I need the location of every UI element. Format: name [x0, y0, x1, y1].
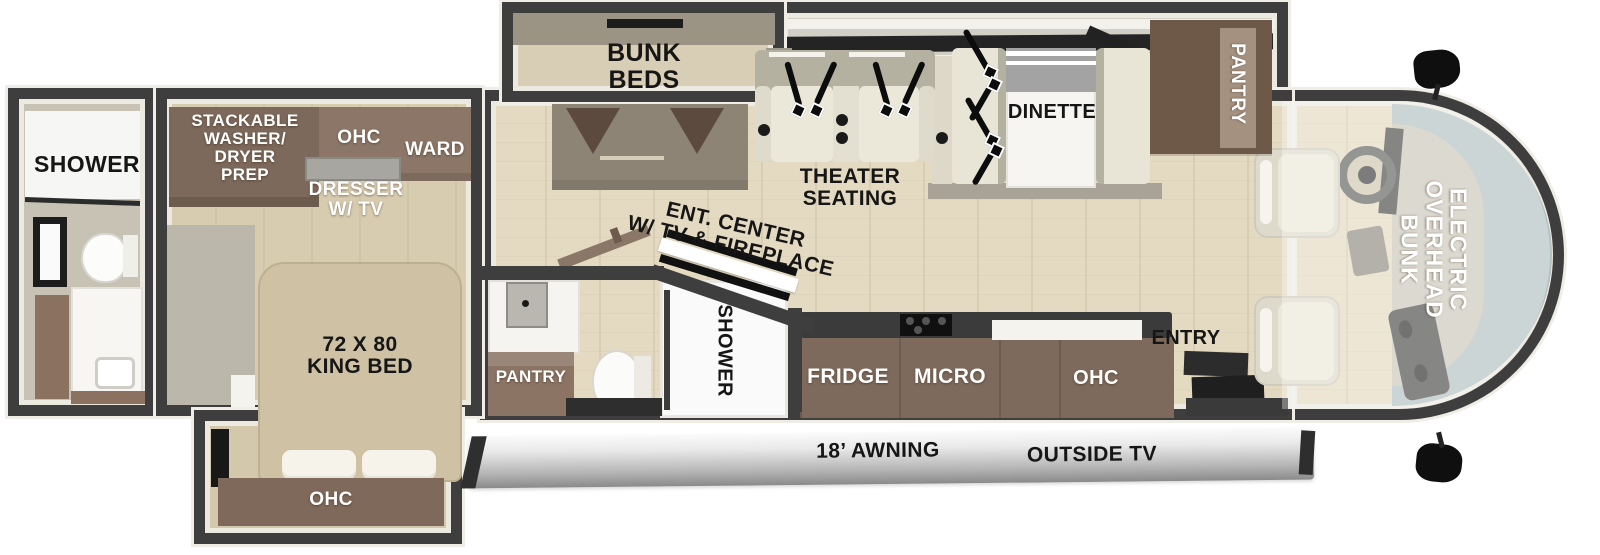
burner	[938, 317, 946, 325]
rear-cabinet-left	[35, 295, 69, 399]
table-leg-triangle	[566, 108, 620, 154]
mid-shower-label: SHOWER	[713, 291, 734, 411]
kitchen-white-appliance	[992, 320, 1142, 340]
bed-pillow	[362, 450, 436, 480]
ward-label: WARD	[399, 140, 471, 160]
bedroom-ohc-label: OHC	[319, 128, 399, 148]
theater-headrest	[849, 52, 905, 57]
theater-headrest	[769, 52, 825, 57]
entry-floor-mat	[1186, 398, 1288, 416]
table-leg-triangle	[670, 108, 724, 154]
bunk-beds-label: BUNK BEDS	[576, 40, 712, 93]
king-bed-label: 72 X 80 KING BED	[285, 334, 435, 379]
mid-bath-mat	[566, 398, 662, 416]
fridge-label: FRIDGE	[802, 366, 894, 388]
rear-bath-window	[33, 217, 67, 287]
mid-bath-wall-right	[788, 308, 802, 412]
rear-bath	[8, 88, 156, 416]
washer-dryer-label: STACKABLE WASHER/ DRYER PREP	[172, 112, 318, 184]
sink-drain	[522, 300, 529, 307]
bedroom-nightstand	[231, 375, 255, 407]
bed-slide-ohc-label: OHC	[218, 490, 444, 510]
dresser-tv	[305, 157, 401, 181]
awning-right-cap	[1299, 430, 1316, 475]
dinette-label: DINETTE	[1000, 102, 1104, 123]
mid-bath-shower-door	[664, 290, 670, 410]
dinette-table-stripe	[1006, 61, 1096, 65]
cupholder	[836, 132, 848, 144]
theater-seat-cushion	[771, 86, 833, 162]
burner	[922, 317, 930, 325]
chair-headrest	[1260, 308, 1272, 372]
kitchen-ohc-label: OHC	[1056, 368, 1136, 389]
entry-step	[1184, 351, 1249, 377]
dining-table	[552, 104, 748, 190]
chair-headrest	[1260, 160, 1272, 224]
rv-floorplan-canvas: ELECTRIC OVERHEAD BUNK BUNK BEDS SHOWER …	[0, 0, 1600, 555]
theater-armrest	[919, 86, 935, 162]
pantry-top-label: PANTRY	[1227, 29, 1247, 139]
dresser-label: DRESSER W/ TV	[301, 180, 411, 220]
dinette-bench-right	[1096, 48, 1150, 184]
awning-label: 18’ AWNING	[778, 439, 978, 463]
rear-vanity-sink	[95, 357, 135, 389]
end-table-knob	[936, 132, 948, 144]
rear-cabinet-bottom	[71, 391, 145, 404]
mid-bath-wall-top	[482, 266, 664, 280]
cupholder	[836, 114, 848, 126]
table-highlight	[600, 156, 664, 160]
dinette-table-stripe	[1006, 51, 1096, 56]
stove-cooktop	[900, 314, 952, 336]
rear-toilet-bowl	[81, 233, 127, 283]
rear-toilet-tank	[123, 235, 138, 277]
outside-tv-label: OUTSIDE TV	[992, 443, 1192, 467]
mid-pantry-label: PANTRY	[488, 368, 574, 386]
bed-pillow	[282, 450, 356, 480]
burner	[906, 317, 914, 325]
cupholder	[758, 124, 770, 136]
theater-seating-label: THEATER SEATING	[788, 166, 912, 211]
awning-left-cap	[460, 436, 486, 488]
burner	[914, 326, 922, 334]
rear-shower-label: SHOWER	[30, 152, 144, 176]
end-table	[932, 56, 952, 184]
micro-label: MICRO	[904, 366, 996, 388]
awning-bar: 18’ AWNING OUTSIDE TV	[468, 428, 1314, 489]
bunk-tv-mount	[607, 19, 683, 28]
entry-label: ENTRY	[1138, 328, 1234, 349]
electric-overhead-bunk-label: ELECTRIC OVERHEAD BUNK	[1397, 150, 1470, 350]
